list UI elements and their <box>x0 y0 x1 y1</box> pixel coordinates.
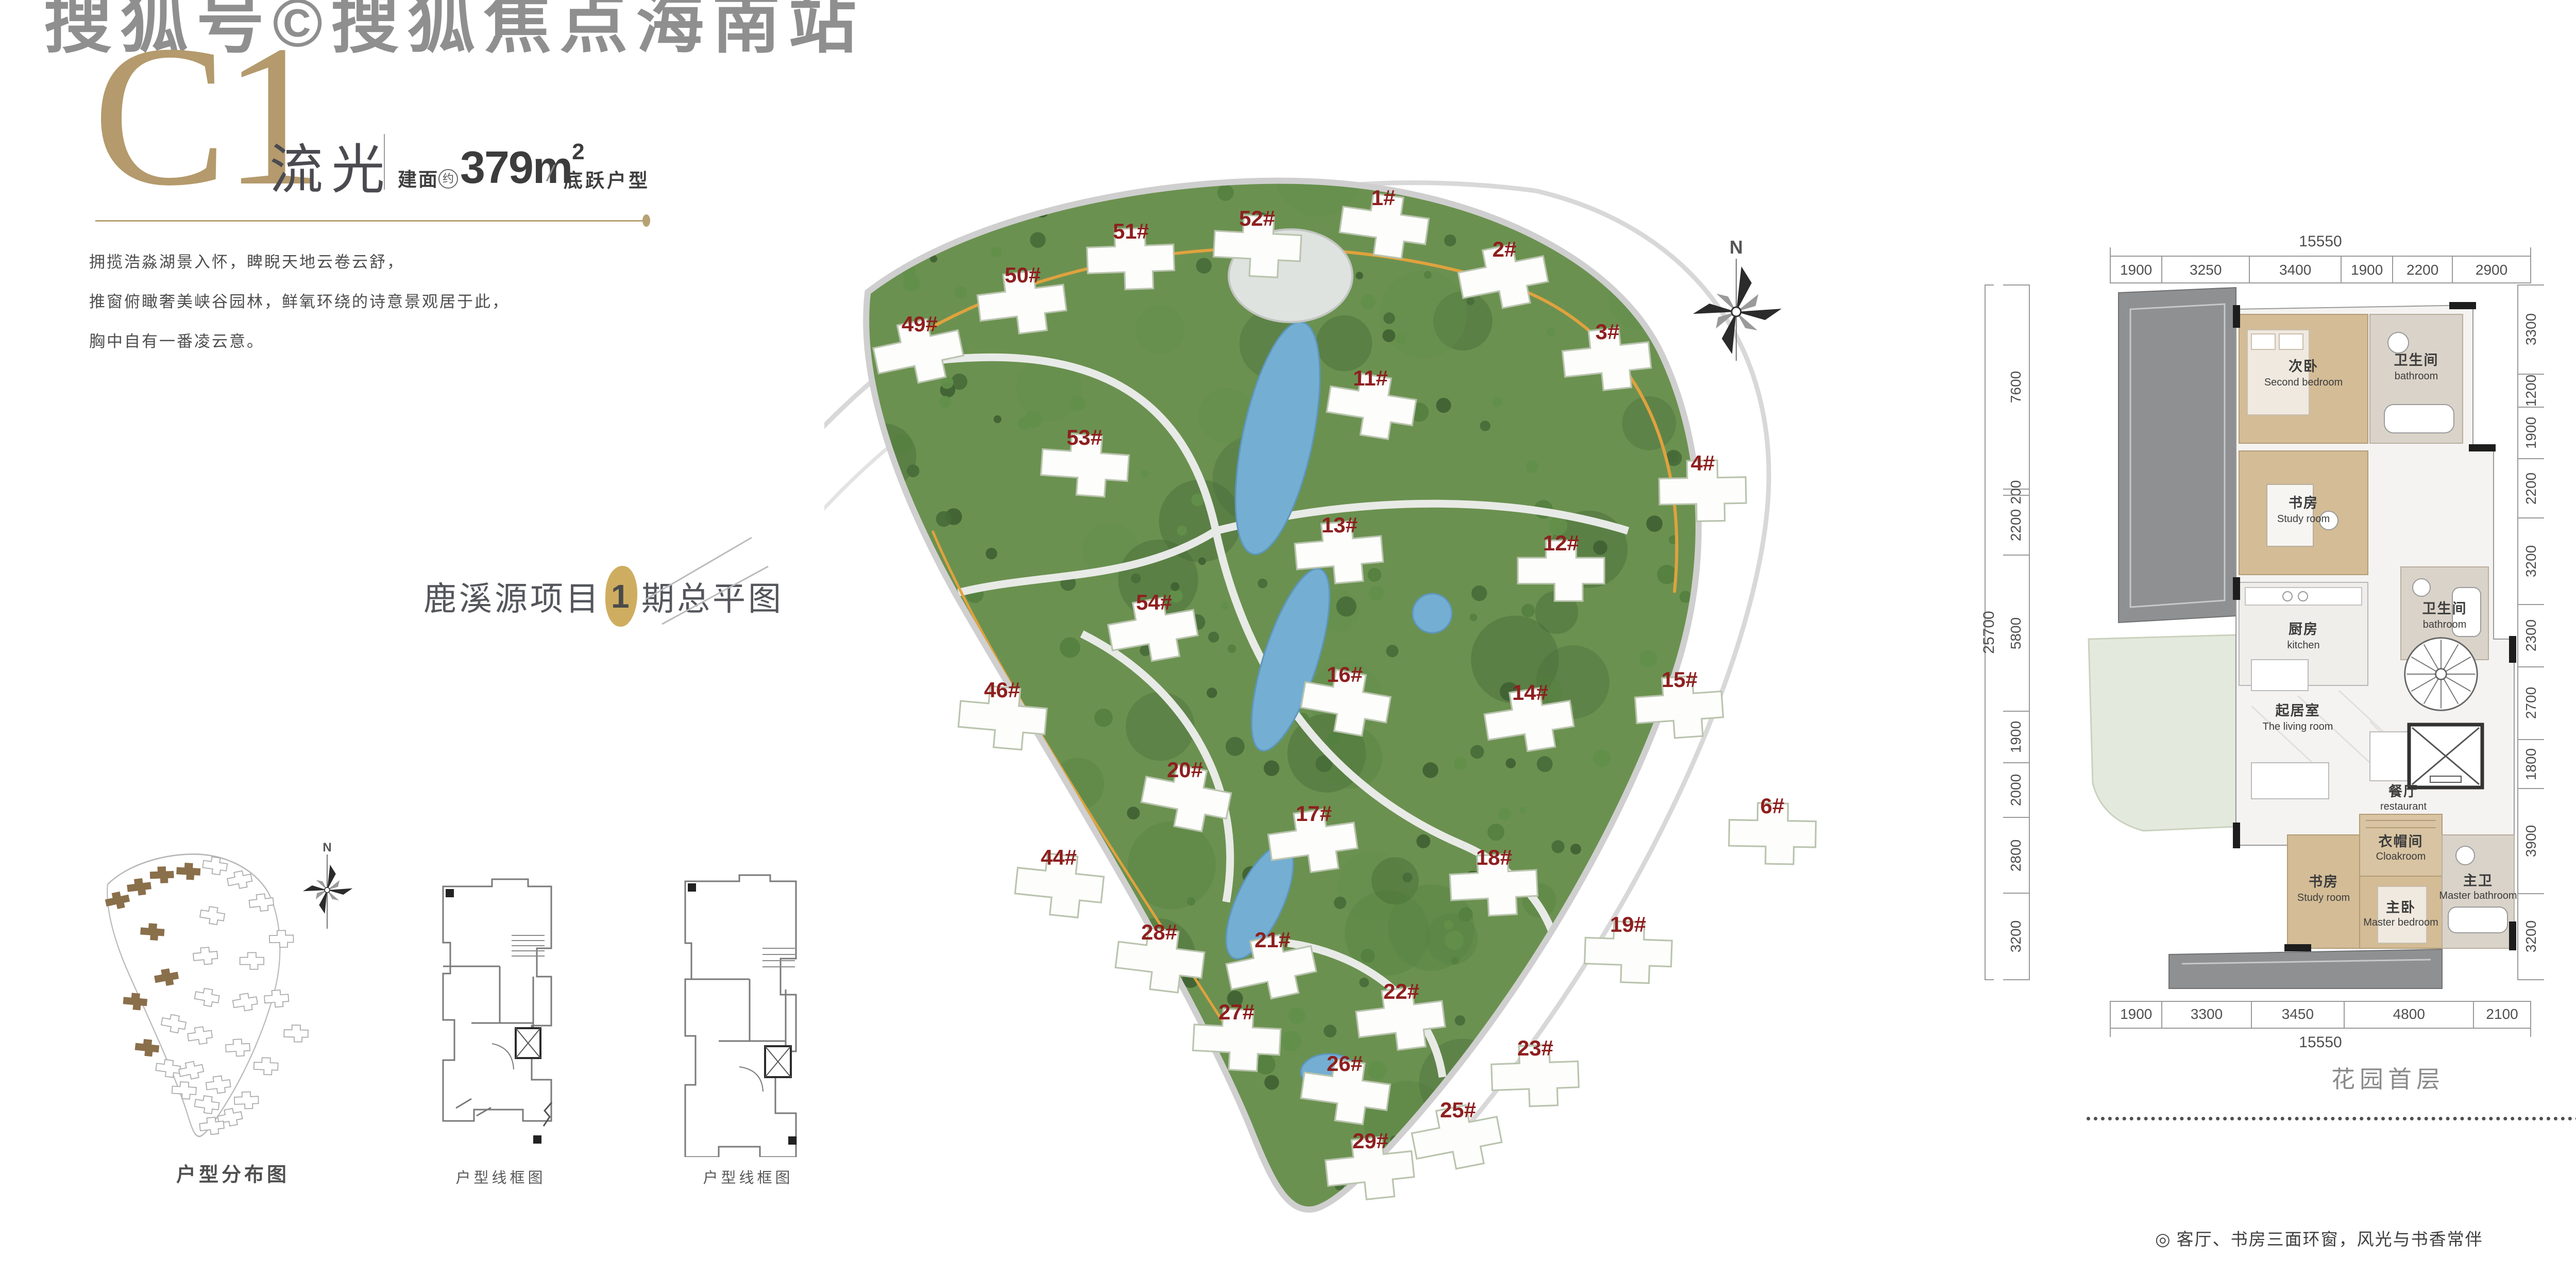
dim-value: 2000 <box>2008 774 2024 806</box>
intro-line-1: 拥揽浩淼湖景入怀，睥睨天地云卷云舒， <box>89 242 510 282</box>
building-number-label: 25# <box>1440 1098 1476 1122</box>
masterplan-site-map: 49#50#51#52#1#2#3#4#53#11#54#13#12#46#16… <box>824 170 1834 1216</box>
poster-canvas: { "watermark": {"text": "搜狐号©搜狐焦点海南站"}, … <box>0 0 2576 1274</box>
dim-value: 3450 <box>2282 1006 2314 1022</box>
svg-text:厨房: 厨房 <box>2289 622 2318 637</box>
mini-compass-icon: N <box>296 836 358 934</box>
building-number-label: 29# <box>1352 1129 1388 1153</box>
building-number-label: 51# <box>1113 219 1149 243</box>
masterplan-title-prefix: 鹿溪源项目 <box>423 573 601 620</box>
svg-text:The living room: The living room <box>2263 721 2333 732</box>
plan1-caption: 花园首层 <box>2331 1061 2445 1095</box>
dim-value: 2800 <box>2008 839 2024 871</box>
building-number-label: 50# <box>1005 263 1041 287</box>
building-number-label: 6# <box>1760 794 1785 818</box>
dim-value: 1200 <box>2523 374 2539 406</box>
dim-value: 3400 <box>2279 262 2311 278</box>
title-underline <box>95 220 642 222</box>
building-number-label: 13# <box>1321 513 1358 537</box>
dim-value: 2300 <box>2523 619 2539 651</box>
svg-text:衣帽间: 衣帽间 <box>2379 833 2424 849</box>
dim-value: 1900 <box>2523 416 2539 448</box>
svg-text:书房: 书房 <box>2309 874 2338 890</box>
building-number-label: 22# <box>1383 979 1419 1003</box>
svg-text:次卧: 次卧 <box>2289 359 2318 374</box>
dim-value: 3200 <box>2008 920 2024 952</box>
north-compass-icon: N <box>1685 232 1788 371</box>
svg-text:N: N <box>1730 237 1743 258</box>
footer-dotted-line-left <box>2087 1117 2576 1120</box>
svg-text:主卧: 主卧 <box>2386 900 2416 915</box>
dim-value: 5800 <box>2008 617 2024 649</box>
decor-diagonal-lines <box>641 523 775 626</box>
building-number-label: 49# <box>902 312 938 336</box>
svg-text:卫生间: 卫生间 <box>2394 353 2439 368</box>
dim-value: 1900 <box>2120 1006 2152 1022</box>
phase-number: 1 <box>611 577 632 615</box>
dim-value: 3200 <box>2523 545 2539 577</box>
building-number-label: 2# <box>1493 237 1517 261</box>
dim-value: 3300 <box>2523 313 2539 345</box>
building-number-label: 1# <box>1371 186 1396 210</box>
svg-text:Master bedroom: Master bedroom <box>2363 917 2438 928</box>
building-number-label: 3# <box>1596 320 1620 344</box>
dim-value: 2900 <box>2476 262 2507 278</box>
building-number-label: 17# <box>1296 801 1332 826</box>
dim-value: 3200 <box>2523 920 2539 952</box>
distribution-map-label: 户型分布图 <box>176 1159 290 1187</box>
dim-value: 1900 <box>2120 262 2152 278</box>
building-number-label: 4# <box>1691 451 1715 475</box>
footer-note: 第三方单位装饰方案示意图 / 单位:mm <box>2087 1106 2576 1131</box>
wireframe-b-label: 户型线框图 <box>703 1166 793 1187</box>
building-number-label: 12# <box>1543 531 1579 555</box>
svg-text:restaurant: restaurant <box>2380 801 2427 812</box>
building-number-label: 18# <box>1476 845 1512 869</box>
unit-name: 流光 <box>269 126 393 204</box>
plan1-right-dims: 3300120019002200320023002700180039003200 <box>2517 284 2544 980</box>
building-number-label: 53# <box>1066 425 1103 449</box>
title-underline-dot <box>642 214 650 227</box>
title-divider <box>384 134 385 190</box>
building-number-label: 11# <box>1353 366 1388 390</box>
svg-text:kitchen: kitchen <box>2287 640 2319 651</box>
building-number-label: 26# <box>1327 1051 1363 1076</box>
feature-bullet-1: ◎客厅、书房三面环窗，风光与书香常伴 <box>2155 1226 2483 1250</box>
intro-line-3: 胸中自有一番凌云意。 <box>89 322 510 361</box>
svg-text:N: N <box>323 841 331 854</box>
plan1-left-dims: 7600200220058001900200028003200 <box>2003 284 2030 980</box>
building-number-label: 20# <box>1167 758 1203 782</box>
building-number-label: 54# <box>1136 590 1172 614</box>
dim-value: 2200 <box>2523 472 2539 504</box>
floorplan-garden-ground: 次卧 Second bedroom 卫生间 bathroom 书房 Study … <box>2081 278 2524 990</box>
bullet-ring-icon: ◎ <box>2155 1230 2172 1249</box>
area-superscript: 2 <box>572 139 583 164</box>
dim-value: 1900 <box>2008 721 2024 753</box>
dim-value: 3300 <box>2191 1006 2223 1022</box>
building-number-label: 14# <box>1512 680 1548 705</box>
svg-text:餐厅: 餐厅 <box>2388 784 2418 799</box>
building-number-label: 52# <box>1239 206 1275 230</box>
area-approx-badge: 约 <box>438 169 458 189</box>
intro-paragraph: 拥揽浩淼湖景入怀，睥睨天地云卷云舒， 推窗俯瞰奢美峡谷园林，鲜氧环绕的诗意景观居… <box>89 242 510 361</box>
svg-text:Master bathroom: Master bathroom <box>2439 890 2517 901</box>
building-number-label: 46# <box>984 678 1020 702</box>
plan1-bottom-dims: 19003300345048002100 <box>2110 1001 2531 1028</box>
dim-value: 2100 <box>2486 1006 2518 1022</box>
unit-wireframe-plan-b <box>662 871 837 1157</box>
svg-text:Second bedroom: Second bedroom <box>2264 377 2343 388</box>
dim-value: 3900 <box>2523 825 2539 857</box>
dim-value: 1900 <box>2351 262 2383 278</box>
building-number-label: 23# <box>1517 1036 1553 1060</box>
svg-text:书房: 书房 <box>2289 495 2318 511</box>
building-number-label: 19# <box>1610 912 1646 936</box>
unit-distribution-map <box>98 850 319 1154</box>
dim-value: 1800 <box>2523 748 2539 780</box>
building-number-label: 28# <box>1141 920 1177 944</box>
phase-badge: 1 <box>604 565 638 627</box>
unit-wireframe-plan-a <box>415 874 590 1154</box>
dim-value: 2200 <box>2406 262 2438 278</box>
svg-text:Study room: Study room <box>2277 513 2330 525</box>
svg-text:bathroom: bathroom <box>2395 371 2438 382</box>
plan1-top-dims: 190032503400190022002900 <box>2110 257 2531 283</box>
svg-text:bathroom: bathroom <box>2423 619 2467 630</box>
svg-text:主卫: 主卫 <box>2463 873 2493 889</box>
building-number-label: 16# <box>1327 662 1363 686</box>
building-number-label: 15# <box>1662 667 1698 692</box>
area-number: 379m <box>460 142 572 193</box>
svg-text:卫生间: 卫生间 <box>2422 601 2467 616</box>
area-slash: / <box>547 161 553 187</box>
svg-text:Study room: Study room <box>2297 892 2350 903</box>
plan1-left-total: 25700 <box>1977 284 2001 980</box>
area-label: 建面 <box>398 164 439 192</box>
svg-text:起居室: 起居室 <box>2276 702 2320 718</box>
plan1-top-total: 15550 <box>2110 233 2531 257</box>
building-number-label: 44# <box>1041 845 1077 869</box>
dim-value: 3250 <box>2190 262 2222 278</box>
building-number-label: 21# <box>1255 928 1291 952</box>
plan1-bottom-total: 15550 <box>2110 1028 2531 1051</box>
wireframe-a-label: 户型线框图 <box>455 1166 546 1187</box>
unit-type-label: 底跃户型 <box>564 165 650 193</box>
dim-value: 2700 <box>2523 687 2539 719</box>
svg-text:Cloakroom: Cloakroom <box>2376 851 2426 862</box>
intro-line-2: 推窗俯瞰奢美峡谷园林，鲜氧环绕的诗意景观居于此， <box>89 282 510 322</box>
dim-value: 2200 <box>2008 509 2024 541</box>
dim-value: 7600 <box>2008 371 2024 403</box>
dim-value: 4800 <box>2393 1006 2425 1022</box>
building-number-label: 27# <box>1218 1000 1255 1024</box>
